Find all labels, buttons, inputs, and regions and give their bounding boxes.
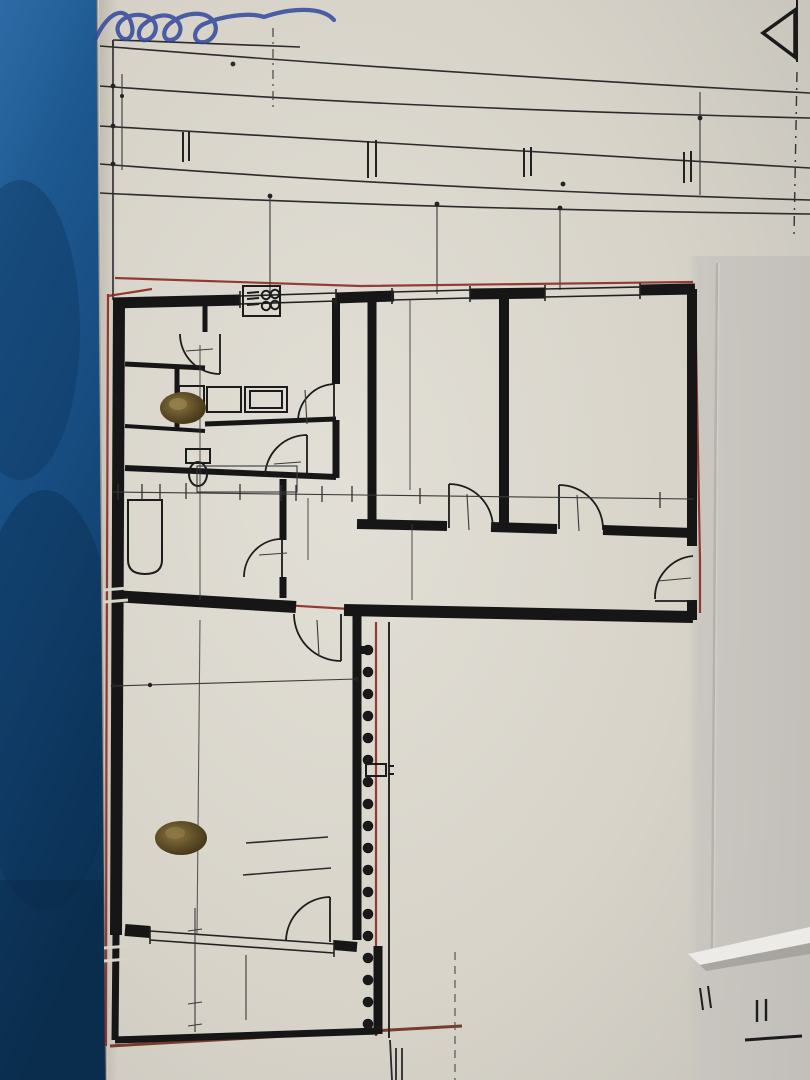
photo-of-floorplan: { "photo": { "handwriting": "…sse", "pen… xyxy=(0,0,810,1080)
exterior-wall-top xyxy=(336,296,394,298)
blue-shade-patch xyxy=(0,880,115,1080)
dirt-blob-highlight xyxy=(165,827,185,839)
exterior-wall-top xyxy=(113,300,240,303)
wall-loggia-block xyxy=(125,930,150,932)
meter-block xyxy=(354,646,368,654)
loggia-wall-left xyxy=(115,935,116,1040)
wall-vorraum-bottom xyxy=(344,610,693,617)
ink-dot xyxy=(231,62,236,67)
dirt-blob-highlight xyxy=(169,398,187,410)
exterior-wall-top xyxy=(640,289,695,290)
floorplan-photo-canvas xyxy=(0,0,810,1080)
exterior-wall-left xyxy=(116,300,119,935)
wall-vorraum-top xyxy=(603,530,693,533)
wall-loggia-block xyxy=(334,945,357,947)
dirt-blob xyxy=(155,821,207,855)
